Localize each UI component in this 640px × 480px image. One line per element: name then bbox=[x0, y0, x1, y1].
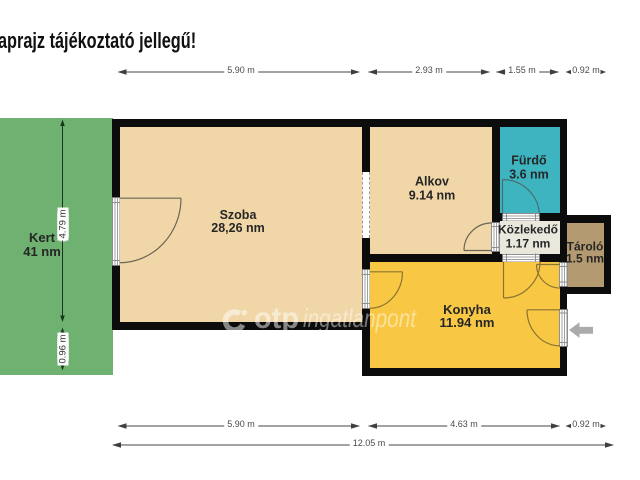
svg-text:ingatlanpont: ingatlanpont bbox=[303, 303, 417, 333]
svg-text:otp: otp bbox=[254, 302, 299, 335]
